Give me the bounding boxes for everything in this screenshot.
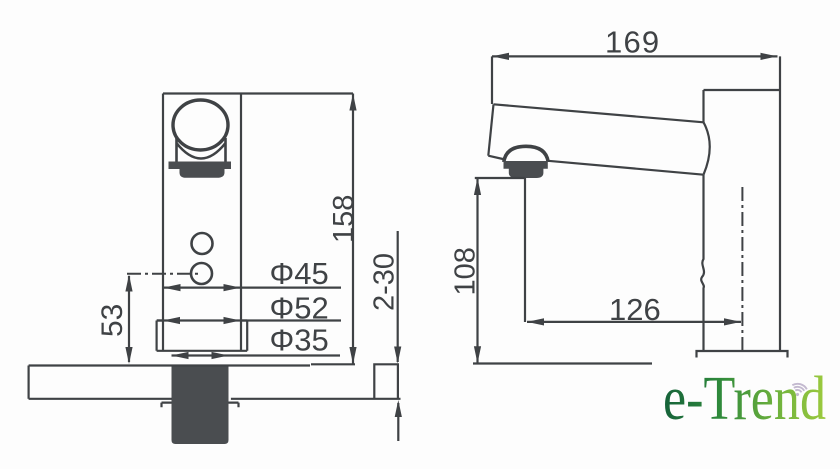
svg-text:108: 108: [450, 247, 482, 295]
svg-text:e-Trend: e-Trend: [663, 365, 826, 433]
svg-text:126: 126: [609, 292, 661, 327]
svg-text:53: 53: [96, 304, 129, 337]
svg-text:Φ52: Φ52: [270, 291, 329, 326]
svg-text:2-30: 2-30: [369, 253, 401, 311]
svg-text:158: 158: [328, 195, 360, 243]
svg-text:Φ45: Φ45: [270, 256, 329, 291]
svg-text:169: 169: [605, 25, 660, 60]
svg-text:Φ35: Φ35: [270, 323, 329, 358]
